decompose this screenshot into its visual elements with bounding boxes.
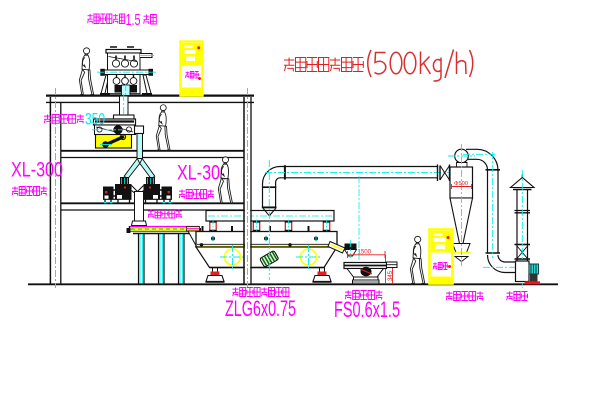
svg-text:FS0.6x1.5: FS0.6x1.5 bbox=[334, 297, 400, 322]
svg-text:1.5: 1.5 bbox=[126, 12, 141, 29]
svg-text:345: 345 bbox=[387, 270, 394, 281]
svg-text:350: 350 bbox=[85, 110, 105, 129]
svg-text:ZLG6x0.75: ZLG6x0.75 bbox=[225, 296, 296, 321]
svg-text:1500: 1500 bbox=[358, 249, 372, 256]
svg-text:XL-300: XL-300 bbox=[11, 158, 63, 182]
svg-text:Φ500: Φ500 bbox=[454, 181, 468, 187]
